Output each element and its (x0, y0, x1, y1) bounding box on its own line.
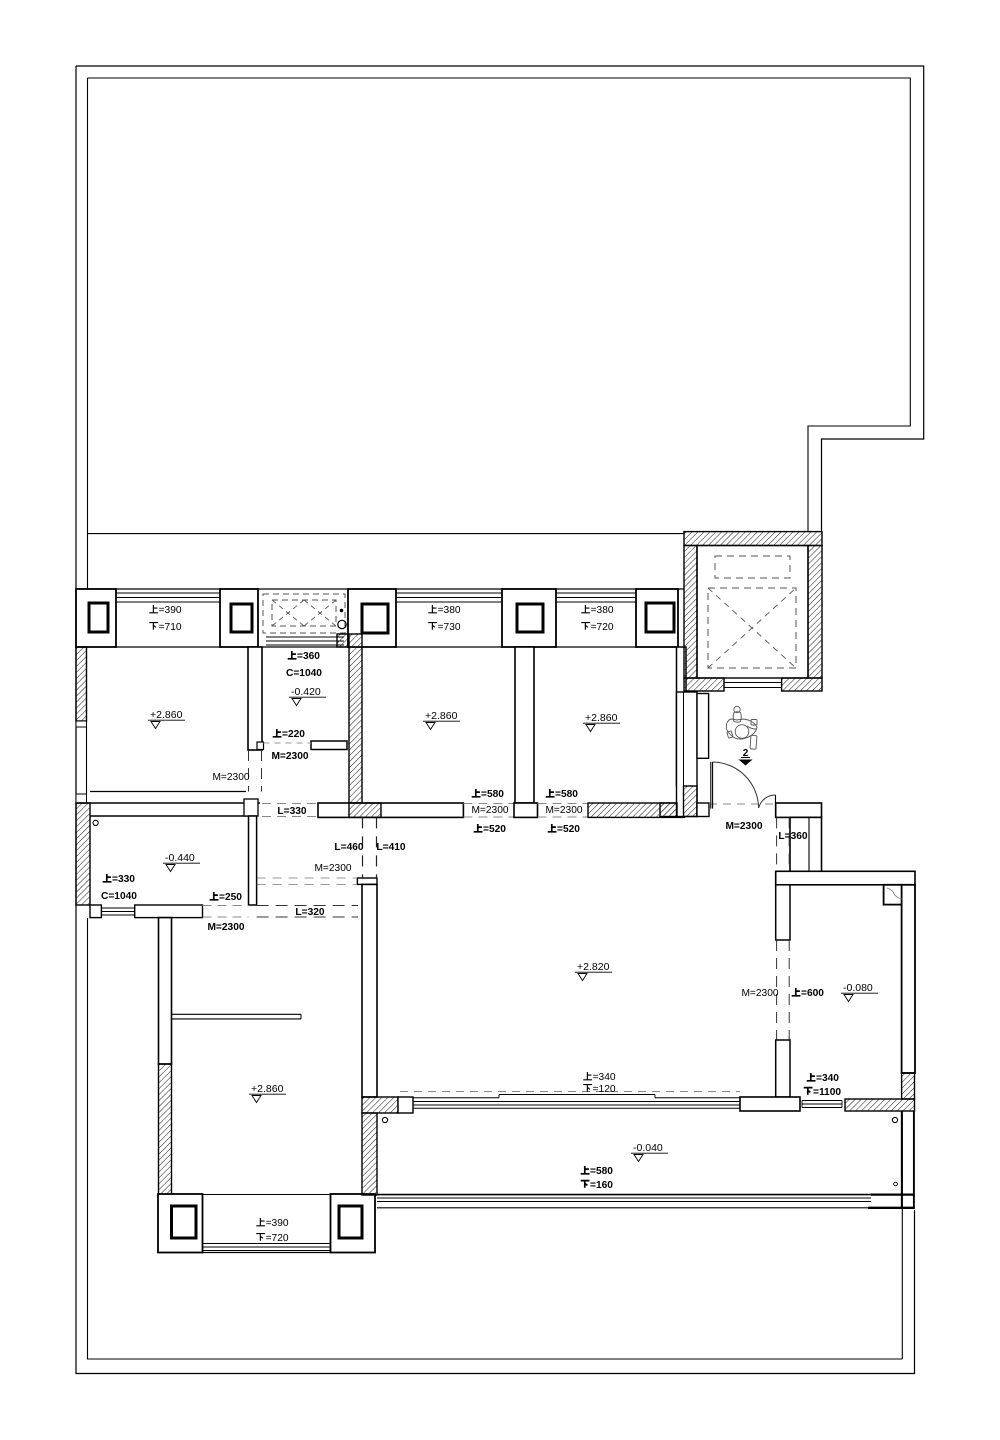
svg-text:=730: =730 (438, 622, 461, 633)
svg-text:=340: =340 (593, 1072, 616, 1083)
svg-text:=380: =380 (591, 605, 614, 616)
svg-text:=580: =580 (481, 789, 504, 800)
svg-text:=220: =220 (282, 729, 305, 740)
svg-text:+2.860: +2.860 (251, 1083, 284, 1095)
svg-text:=340: =340 (816, 1073, 839, 1084)
svg-text:-0.420: -0.420 (291, 686, 321, 698)
svg-text:=390: =390 (266, 1218, 289, 1229)
svg-text:=720: =720 (266, 1233, 289, 1244)
svg-text:=380: =380 (438, 605, 461, 616)
svg-text:-0.080: -0.080 (843, 982, 873, 994)
svg-text:=580: =580 (590, 1166, 613, 1177)
svg-text:+2.860: +2.860 (585, 712, 618, 724)
svg-text:=390: =390 (159, 605, 182, 616)
svg-text:M=2300: M=2300 (271, 751, 308, 762)
svg-text:=520: =520 (557, 824, 580, 835)
svg-text:=360: =360 (297, 651, 320, 662)
svg-text:=330: =330 (112, 874, 135, 885)
svg-text:M=2300: M=2300 (314, 863, 351, 874)
svg-text:L=460: L=460 (334, 842, 364, 853)
svg-text:L=360: L=360 (778, 831, 808, 842)
svg-text:=580: =580 (555, 789, 578, 800)
svg-text:-0.040: -0.040 (633, 1142, 663, 1154)
svg-text:=250: =250 (219, 892, 242, 903)
svg-text:M=2300: M=2300 (725, 821, 762, 832)
svg-text:=120: =120 (593, 1084, 616, 1095)
svg-text:=710: =710 (159, 622, 182, 633)
svg-text:C=1040: C=1040 (101, 891, 137, 902)
svg-text:L=410: L=410 (376, 842, 406, 853)
svg-text:M=2300: M=2300 (471, 805, 508, 816)
svg-text:=520: =520 (483, 824, 506, 835)
svg-text:+2.820: +2.820 (577, 961, 610, 973)
svg-text:M=2300: M=2300 (545, 805, 582, 816)
svg-text:=720: =720 (591, 622, 614, 633)
svg-text:L=320: L=320 (295, 907, 325, 918)
svg-text:-0.440: -0.440 (165, 852, 195, 864)
svg-text:=1100: =1100 (813, 1087, 841, 1098)
svg-text:+2.860: +2.860 (425, 710, 458, 722)
svg-text:M=2300: M=2300 (741, 988, 778, 999)
svg-text:M=2300: M=2300 (207, 922, 244, 933)
svg-text:C=1040: C=1040 (286, 668, 322, 679)
svg-text:+2.860: +2.860 (150, 709, 183, 721)
svg-text:=600: =600 (801, 988, 824, 999)
svg-text:=160: =160 (590, 1180, 613, 1191)
svg-text:L=330: L=330 (277, 806, 307, 817)
svg-text:M=2300: M=2300 (212, 772, 249, 783)
